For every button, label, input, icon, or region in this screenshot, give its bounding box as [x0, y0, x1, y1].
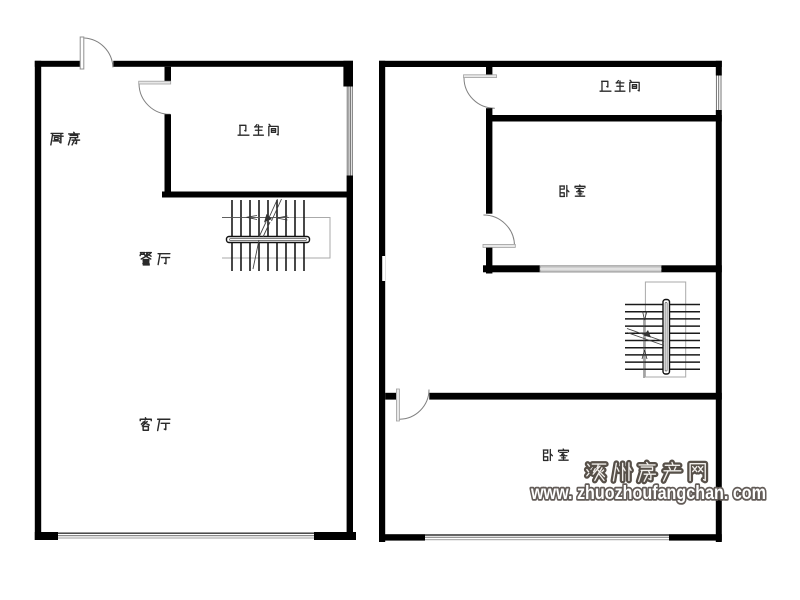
svg-text:www. zhuozhoufangchan. com: www. zhuozhoufangchan. com: [530, 483, 766, 504]
